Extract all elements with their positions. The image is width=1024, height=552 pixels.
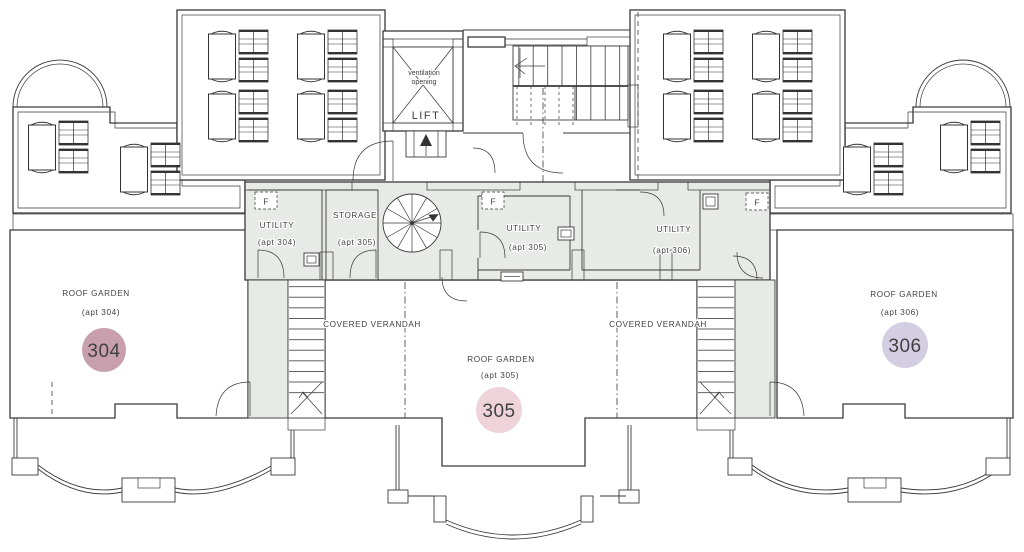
stair-base-wall-right [697, 418, 735, 430]
tile-strip-left [13, 214, 245, 230]
roof-garden-306-label: ROOF GARDEN [870, 290, 938, 299]
fire-point-label-1: F [263, 197, 268, 207]
roof-garden-305-apt: (apt 305) [481, 371, 519, 380]
covered-verandah-left-label: COVERED VERANDAH [323, 320, 421, 329]
utility-305-apt: (apt 305) [509, 243, 547, 252]
storage-305-label: STORAGE [333, 211, 377, 220]
apt-304-number: 304 [87, 341, 120, 362]
roof-garden-306-apt: (apt 306) [881, 308, 919, 317]
staircase-right [697, 280, 735, 418]
lift-label: LIFT [412, 110, 441, 122]
roof-garden-304-label: ROOF GARDEN [62, 289, 130, 298]
staircase-left [288, 280, 325, 418]
ventilation-label-line1: ventilation [408, 70, 440, 77]
apt-306-number: 306 [888, 336, 921, 357]
floor-plan-page: ventilation opening LIFT [0, 0, 1024, 552]
covered-verandah-right-label: COVERED VERANDAH [609, 320, 707, 329]
storage-305-apt: (apt 305) [338, 238, 376, 247]
utility-304-label: UTILITY [260, 221, 295, 230]
balcony-arc-right [916, 60, 1010, 107]
roof-garden-306-tiles [777, 230, 1013, 418]
lift-vestibule [406, 131, 446, 157]
railing-centre [388, 425, 639, 539]
utility-304-apt: (apt 304) [258, 238, 296, 247]
garden-304-labels: ROOF GARDEN (apt 304) 304 [62, 289, 130, 372]
lift-shaft: ventilation opening LIFT [383, 31, 463, 131]
railing-left [12, 418, 295, 502]
floor-plan-canvas: ventilation opening LIFT [0, 0, 1024, 552]
ventilation-label-line2: opening [412, 79, 437, 86]
utility-306-label: UTILITY [657, 225, 692, 234]
utility-306-apt: (apt 306) [653, 246, 691, 255]
vent-grille [468, 37, 505, 47]
roof-garden-305-label: ROOF GARDEN [467, 355, 535, 364]
corridor-right [733, 280, 775, 418]
roof-garden-304-apt: (apt 304) [82, 308, 120, 317]
spiral-staircase [383, 194, 441, 252]
railing-right [728, 418, 1010, 502]
garden-305-labels: ROOF GARDEN (apt 305) 305 [467, 355, 535, 433]
fire-point-label-2: F [490, 197, 495, 207]
corridor-left [248, 280, 288, 418]
main-staircase [513, 46, 628, 128]
roof-garden-304-tiles [10, 230, 248, 418]
balcony-arc-left [13, 60, 107, 107]
tile-strip-right [770, 214, 1013, 230]
apt-305-number: 305 [482, 401, 515, 422]
garden-306-labels: ROOF GARDEN (apt 306) 306 [870, 290, 938, 368]
stair-base-wall-left [288, 418, 325, 430]
utility-305-label: UTILITY [507, 224, 542, 233]
roof-block-right [630, 10, 845, 180]
fire-point-label-3: F [754, 198, 759, 208]
